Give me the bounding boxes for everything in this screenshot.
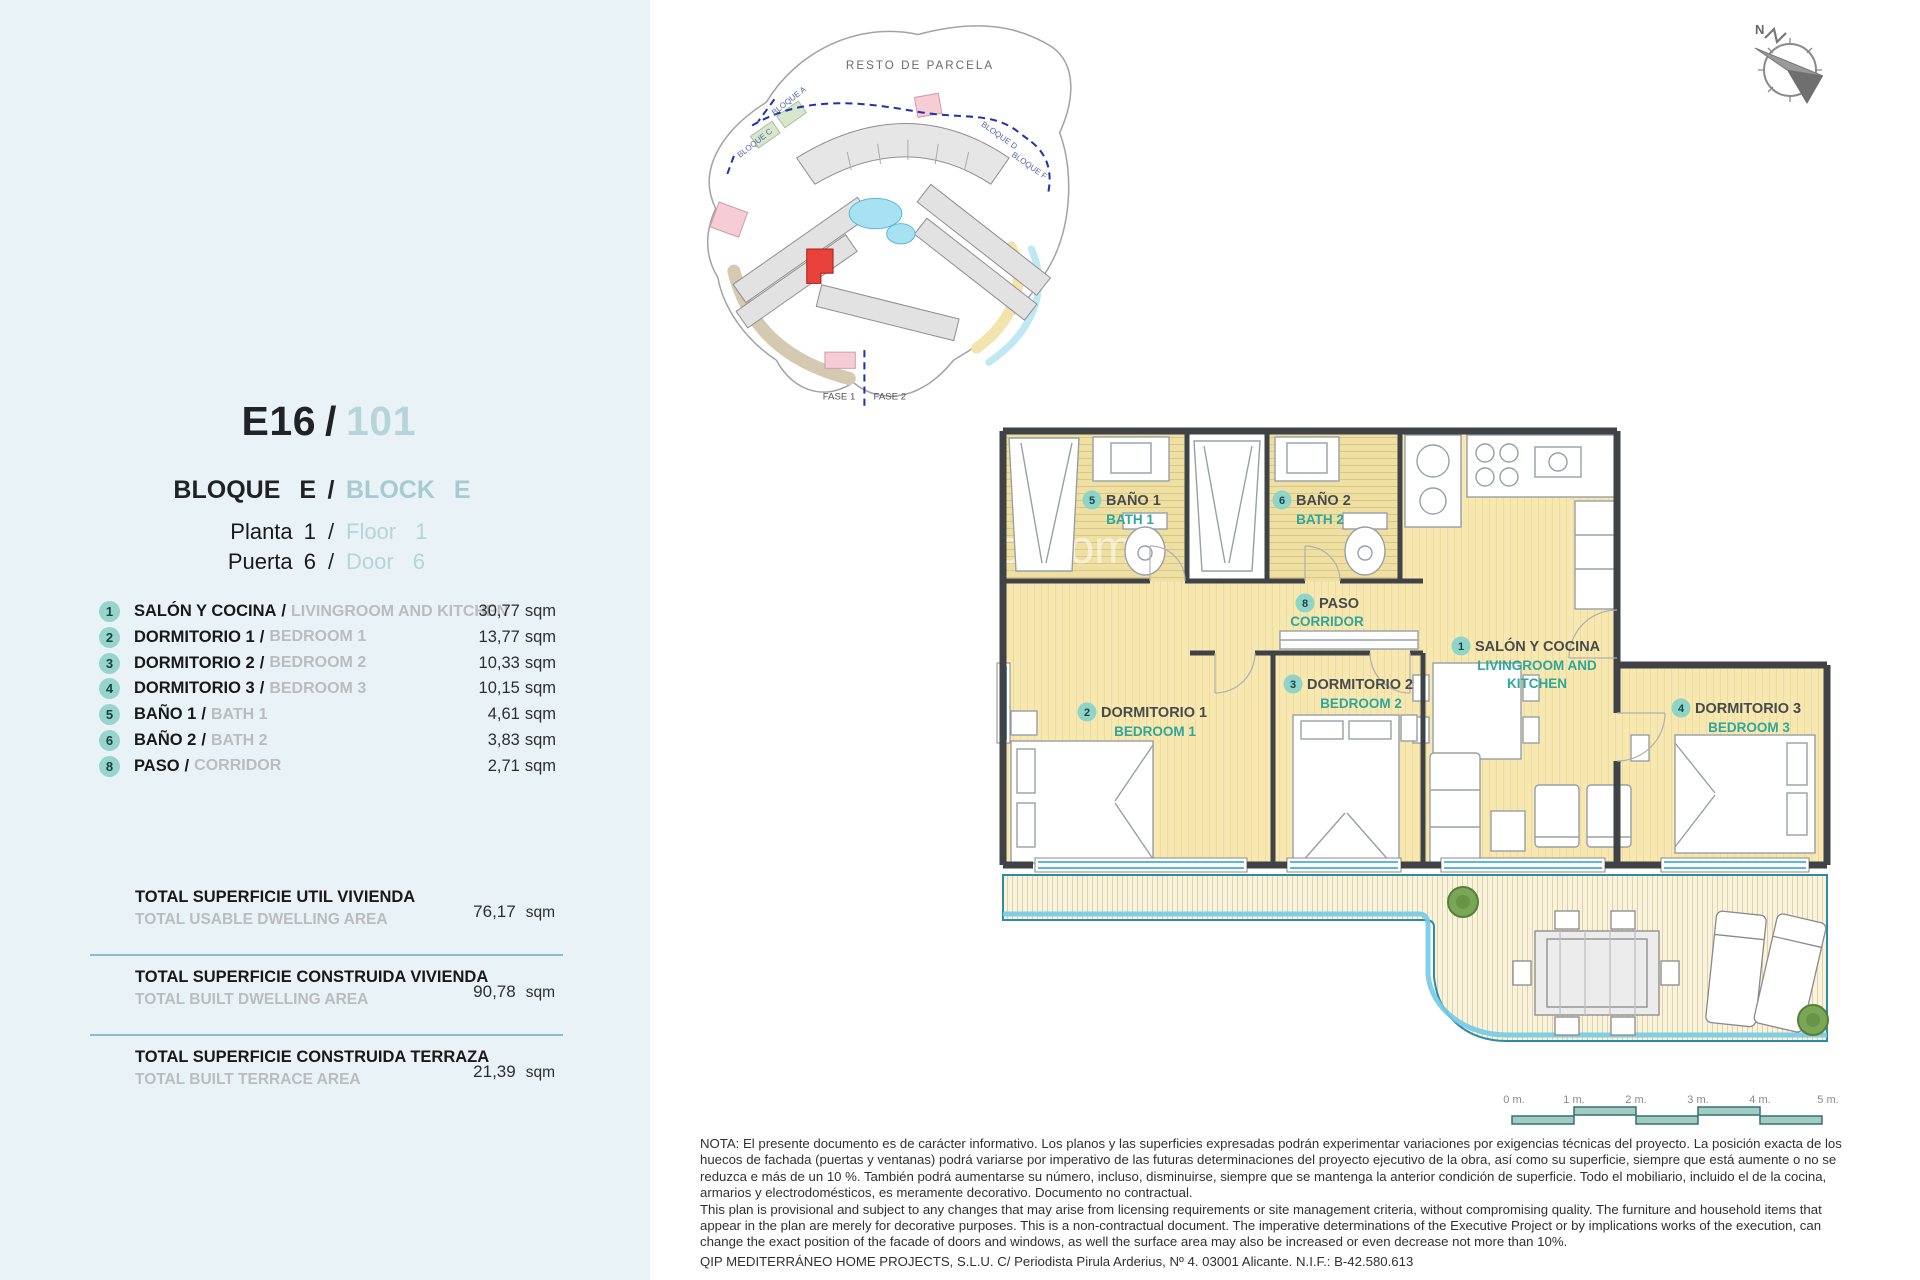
room-area: 13,77sqm — [479, 628, 556, 647]
north-zigzag — [1765, 29, 1786, 42]
separator: / — [260, 679, 265, 698]
separator: / — [185, 757, 190, 776]
apartment-floor-plan: ol.com — [975, 413, 1837, 1061]
coffee-table-icon — [1491, 811, 1525, 851]
room-list-item-living: 1 SALÓN Y COCINA / LIVINGROOM AND KITCHE… — [99, 601, 556, 622]
svg-text:0 m.: 0 m. — [1503, 1094, 1524, 1106]
room-name-es: DORMITORIO 2 — [134, 654, 255, 673]
plan-area: RESTO DE PARCELA BLOQUE A BLOQUE C BLOQU… — [650, 0, 1920, 1280]
room-list-item-bedroom3: 4 DORMITORIO 3 / BEDROOM 3 10,15sqm — [99, 678, 556, 699]
unit-title: E16 / 101 — [0, 398, 650, 445]
kitchen-tall-units-icon — [1575, 501, 1615, 609]
disclaimer-line: appear in the plan are merely for decora… — [700, 1218, 1855, 1234]
svg-text:5 m.: 5 m. — [1817, 1094, 1838, 1106]
svg-text:6: 6 — [1279, 495, 1285, 507]
svg-text:CORRIDOR: CORRIDOR — [1290, 614, 1364, 629]
svg-text:BEDROOM 3: BEDROOM 3 — [1708, 720, 1790, 735]
total-label-es: TOTAL SUPERFICIE UTIL VIVIENDA — [135, 888, 415, 907]
door-en: Door 6 — [346, 549, 650, 575]
svg-text:8: 8 — [1302, 598, 1308, 610]
room-list-item-corridor: 8 PASO / CORRIDOR 2,71sqm — [99, 756, 556, 777]
svg-text:3: 3 — [1290, 679, 1296, 691]
separator: / — [201, 705, 206, 724]
room-number-badge: 8 — [99, 756, 120, 777]
svg-text:2: 2 — [1084, 707, 1090, 719]
svg-text:3 m.: 3 m. — [1687, 1094, 1708, 1106]
svg-text:KITCHEN: KITCHEN — [1507, 676, 1567, 691]
room-list-item-bedroom1: 2 DORMITORIO 1 / BEDROOM 1 13,77sqm — [99, 627, 556, 648]
total-label-en: TOTAL BUILT TERRACE AREA — [135, 1071, 489, 1089]
disclaimer-line: huecos de fachada (puertas y ventanas) p… — [700, 1152, 1855, 1168]
total-value: 21,39sqm — [473, 1062, 555, 1082]
terrace-deck — [1003, 875, 1827, 1041]
room-area: 2,71sqm — [488, 757, 556, 776]
disclaimer-line: reduzca e más de un 10 %. También podrá … — [700, 1169, 1855, 1185]
disclaimer-note: NOTA: El presente documento es de caráct… — [700, 1136, 1855, 1270]
room-number-badge: 3 — [99, 653, 120, 674]
corridor-label: 8 PASO CORRIDOR — [1290, 594, 1364, 630]
room-number-badge: 5 — [99, 704, 120, 725]
bath1-sink-icon — [1093, 437, 1169, 481]
bath2-sink-icon — [1275, 437, 1339, 481]
room-area: 3,83sqm — [488, 731, 556, 750]
bedroom3-nightstand-icon — [1631, 735, 1649, 761]
bedroom2-bed-icon — [1293, 715, 1399, 863]
svg-text:DORMITORIO 2: DORMITORIO 2 — [1307, 677, 1413, 693]
room-name-es: SALÓN Y COCINA — [134, 602, 276, 621]
company-line: QIP MEDITERRÁNEO HOME PROJECTS, S.L.U. C… — [700, 1254, 1855, 1270]
room-number-badge: 4 — [99, 678, 120, 699]
room-name-en: BEDROOM 3 — [269, 680, 366, 698]
room-list-item-bedroom2: 3 DORMITORIO 2 / BEDROOM 2 10,33sqm — [99, 653, 556, 674]
totals-block: TOTAL SUPERFICIE UTIL VIVIENDA TOTAL USA… — [90, 888, 563, 1104]
total-label-es: TOTAL SUPERFICIE CONSTRUIDA VIVIENDA — [135, 968, 488, 987]
unit-code: E16 — [0, 398, 316, 445]
total-label-en: TOTAL BUILT DWELLING AREA — [135, 991, 488, 1009]
block-es: BLOQUE E — [0, 476, 316, 505]
room-name-es: DORMITORIO 1 — [134, 628, 255, 647]
svg-text:DORMITORIO 3: DORMITORIO 3 — [1695, 701, 1801, 717]
room-area: 10,15sqm — [479, 679, 556, 698]
svg-text:BEDROOM 2: BEDROOM 2 — [1320, 696, 1402, 711]
room-area: 30,77sqm — [479, 602, 556, 621]
room-area: 4,61sqm — [488, 705, 556, 724]
separator: / — [281, 602, 286, 621]
sofa-icon — [1430, 753, 1480, 865]
scale-bar: 0 m. 1 m. 2 m. 3 m. 4 m. 5 m. — [1498, 1092, 1846, 1138]
floor-line: Planta 1 / Floor 1 — [0, 519, 650, 545]
room-name-en: BATH 1 — [211, 706, 268, 724]
svg-text:DORMITORIO 1: DORMITORIO 1 — [1101, 705, 1207, 721]
svg-text:1 m.: 1 m. — [1563, 1094, 1584, 1106]
svg-text:BEDROOM 1: BEDROOM 1 — [1114, 724, 1196, 739]
disclaimer-line: NOTA: El presente documento es de caráct… — [700, 1136, 1855, 1152]
floor-en: Floor 1 — [346, 519, 650, 545]
separator: / — [260, 654, 265, 673]
room-name-en: BATH 2 — [211, 732, 268, 750]
total-usable-area: TOTAL SUPERFICIE UTIL VIVIENDA TOTAL USA… — [90, 888, 563, 944]
block-en: BLOCK E — [346, 476, 650, 505]
bedroom2-nightstand-icon — [1401, 715, 1417, 741]
bedroom1-bed-icon — [1011, 741, 1153, 863]
total-value: 90,78sqm — [473, 982, 555, 1002]
total-label-es: TOTAL SUPERFICIE CONSTRUIDA TERRAZA — [135, 1048, 489, 1067]
room-list-item-bath2: 6 BAÑO 2 / BATH 2 3,83sqm — [99, 730, 556, 751]
bedroom1-nightstand-icon — [1011, 711, 1037, 735]
divider — [90, 1034, 563, 1036]
terrace-table-icon — [1535, 931, 1659, 1015]
room-name-es: PASO — [134, 757, 180, 776]
kitchen-counter-icon — [1467, 435, 1615, 497]
fase2-label: FASE 2 — [874, 392, 907, 403]
north-label: N — [1755, 22, 1764, 37]
room-name-es: BAÑO 2 — [134, 731, 196, 750]
separator: / — [316, 519, 346, 545]
room-list: 1 SALÓN Y COCINA / LIVINGROOM AND KITCHE… — [99, 601, 556, 777]
floor-es: Planta 1 — [0, 519, 316, 545]
svg-text:BATH 2: BATH 2 — [1296, 512, 1344, 527]
svg-text:LIVINGROOM AND: LIVINGROOM AND — [1477, 658, 1597, 673]
room-area: 10,33sqm — [479, 654, 556, 673]
room-list-item-bath1: 5 BAÑO 1 / BATH 1 4,61sqm — [99, 704, 556, 725]
resto-de-parcela-label: RESTO DE PARCELA — [846, 59, 994, 72]
total-value: 76,17sqm — [473, 902, 555, 922]
compass-icon: N — [1735, 12, 1835, 112]
room-name-en: CORRIDOR — [194, 757, 281, 775]
disclaimer-line: change the exact position of the facade … — [700, 1234, 1855, 1250]
svg-text:4 m.: 4 m. — [1749, 1094, 1770, 1106]
total-built-area: TOTAL SUPERFICIE CONSTRUIDA VIVIENDA TOT… — [90, 968, 563, 1024]
svg-text:SALÓN Y COCINA: SALÓN Y COCINA — [1475, 637, 1601, 655]
info-panel: E16 / 101 BLOQUE E / BLOCK E Planta 1 / … — [0, 0, 650, 1280]
svg-text:BATH 1: BATH 1 — [1106, 512, 1154, 527]
divider — [90, 954, 563, 956]
corridor-wardrobe-icon — [1280, 631, 1418, 649]
svg-text:BAÑO 1: BAÑO 1 — [1106, 491, 1161, 509]
svg-text:5: 5 — [1089, 495, 1095, 507]
room-name-es: BAÑO 1 — [134, 705, 196, 724]
svg-text:4: 4 — [1678, 703, 1685, 715]
washer-icon — [1405, 435, 1461, 527]
block-title: BLOQUE E / BLOCK E — [0, 476, 650, 505]
disclaimer-line: This plan is provisional and subject to … — [700, 1202, 1855, 1218]
room-name-en: BEDROOM 1 — [269, 628, 366, 646]
separator: / — [260, 628, 265, 647]
compass-arrow-fin — [1787, 70, 1823, 104]
separator: / — [316, 476, 346, 505]
room-number-badge: 1 — [99, 601, 120, 622]
bath2-shower-icon — [1194, 441, 1260, 571]
bedroom3-bed-icon — [1675, 735, 1815, 853]
separator: / — [201, 731, 206, 750]
separator: / — [316, 398, 346, 445]
disclaimer-line: armarios y electrodomésticos, es meramen… — [700, 1185, 1855, 1201]
room-name-en: BEDROOM 2 — [269, 654, 366, 672]
room-name-es: DORMITORIO 3 — [134, 679, 255, 698]
svg-text:2 m.: 2 m. — [1625, 1094, 1646, 1106]
total-terrace-area: TOTAL SUPERFICIE CONSTRUIDA TERRAZA TOTA… — [90, 1048, 563, 1104]
scale-bar-labels: 0 m. 1 m. 2 m. 3 m. 4 m. 5 m. — [1503, 1094, 1838, 1106]
fase1-label: FASE 1 — [823, 392, 856, 403]
floor-plan-sheet: E16 / 101 BLOQUE E / BLOCK E Planta 1 / … — [0, 0, 1920, 1280]
bath2-toilet-icon — [1343, 513, 1387, 575]
door-line: Puerta 6 / Door 6 — [0, 549, 650, 575]
room-number-badge: 6 — [99, 730, 120, 751]
scale-bar-segments — [1512, 1107, 1822, 1124]
door-es: Puerta 6 — [0, 549, 316, 575]
bath1-shower-icon — [1009, 438, 1079, 571]
svg-text:BAÑO 2: BAÑO 2 — [1296, 491, 1351, 509]
site-plan: RESTO DE PARCELA BLOQUE A BLOQUE C BLOQU… — [655, 6, 1090, 411]
unit-number: 101 — [346, 398, 650, 445]
svg-text:PASO: PASO — [1319, 596, 1359, 612]
total-label-en: TOTAL USABLE DWELLING AREA — [135, 911, 415, 929]
room-number-badge: 2 — [99, 627, 120, 648]
room-name-en: LIVINGROOM AND KITCHEN — [291, 603, 508, 621]
separator: / — [316, 549, 346, 575]
svg-text:1: 1 — [1458, 641, 1464, 653]
